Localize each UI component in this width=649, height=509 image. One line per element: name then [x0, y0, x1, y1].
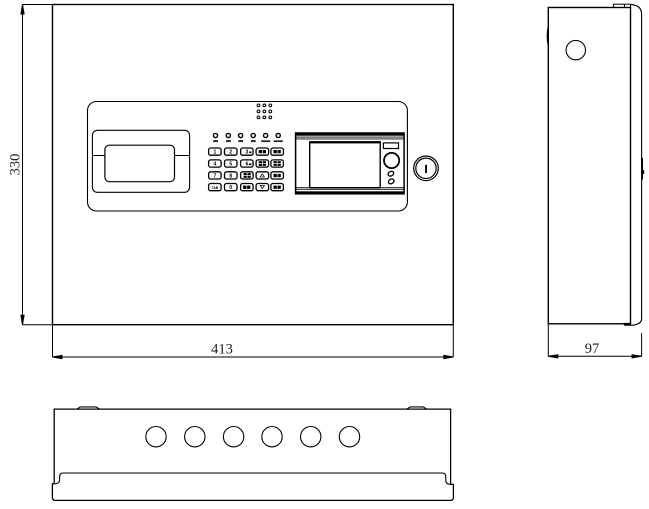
svg-text:330: 330	[8, 154, 24, 176]
svg-text:6: 6	[246, 162, 249, 168]
svg-text:1: 1	[214, 150, 217, 156]
svg-text:3: 3	[246, 150, 249, 156]
svg-text:4: 4	[214, 162, 217, 168]
svg-text:8: 8	[229, 173, 232, 179]
svg-text:2: 2	[229, 150, 232, 156]
svg-text:97: 97	[585, 341, 600, 357]
svg-text:7: 7	[214, 173, 217, 179]
svg-text:TAB: TAB	[212, 186, 219, 190]
svg-text:0: 0	[229, 185, 232, 191]
svg-text:5: 5	[229, 162, 232, 168]
svg-text:413: 413	[211, 342, 233, 358]
